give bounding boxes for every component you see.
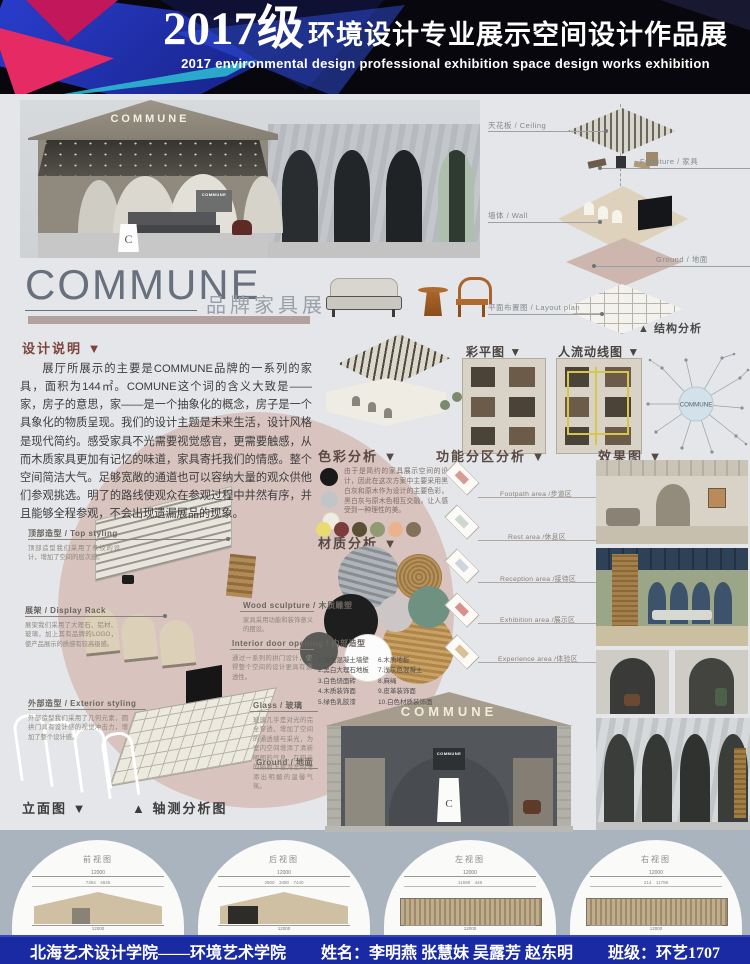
caption-interior-door: 通过一系列的拱门设计，使得整个空间的设计更具有通透性。	[232, 654, 312, 682]
title-year: 2017级	[163, 6, 304, 53]
footer-name-values: 李明燕 张慧妹 吴露芳 赵东明	[369, 939, 573, 963]
leader-line	[478, 662, 600, 663]
leader-line	[478, 540, 600, 541]
function-zones-heading: 功能分区分析 ▼	[436, 446, 546, 465]
elevation-dim: 12000	[590, 870, 722, 877]
render-thumbnail-4	[596, 718, 750, 830]
elevation-title: 前视图	[12, 854, 184, 865]
structure-exploded-diagram: 天花板 / Ceiling Furniture / 家具 墙体 / Wall G…	[488, 98, 750, 338]
material-item: 6.木质地板	[378, 656, 444, 666]
elevation-subdims: 11598 446	[404, 880, 536, 887]
leader-line	[478, 497, 600, 498]
axon-building-arch	[352, 396, 360, 406]
leader-dot	[600, 312, 604, 316]
structure-arch	[598, 206, 608, 219]
front-render-chair	[523, 800, 541, 814]
hero-desk-front	[124, 225, 220, 233]
zone-icon-footpath	[444, 460, 479, 495]
brand-underline	[25, 310, 197, 311]
leader-line	[594, 266, 750, 267]
elevation-rear: 后视图 12000 2900 3490 7440 12000	[198, 840, 370, 935]
caption-display-rack: 展架我们采用了大理石、铝材、玻璃，加上其有品牌的LOGO，使产品展示的质感有较高…	[25, 621, 117, 649]
footer-class: 班级： 环艺1707	[608, 939, 720, 963]
axon-analysis-label: ▲ 轴测分析图	[132, 798, 227, 817]
axon-building-tree	[452, 392, 462, 402]
design-note-body: 展厅所展示的主要是COMMUNE品牌的一系列的家具，面积为144㎡。COMUNE…	[20, 360, 312, 523]
elevation-drawing	[400, 898, 542, 926]
hero-rendering: COMMUNE C COMMUNE	[20, 100, 480, 258]
caption-exterior-styling: 外部造型我们采用了几何元素，圆拱门具有设计感的视觉冲击力，增加了整个设计感。	[28, 714, 128, 742]
sofa-icon	[326, 296, 402, 310]
leader-dot	[598, 220, 602, 224]
leader-line	[250, 711, 318, 712]
hero-neon-sign: COMMUNE	[75, 113, 225, 125]
caption-glass: 玻璃几乎是对光的完全穿透，增加了空间的通透感与采光，为室内空间增添了清新明朗的气…	[253, 716, 313, 792]
elevation-dim-bottom: 12000	[32, 925, 164, 931]
material-item: 8.麻绳	[378, 677, 444, 687]
front-render-pillar	[327, 726, 341, 826]
label-display-rack: 展架 / Display Rack	[25, 605, 106, 616]
sofa-leg	[332, 309, 335, 317]
hero-ceiling	[38, 138, 268, 176]
title-chinese: 环境设计专业展示空间设计作品展	[308, 19, 728, 53]
elevation-dim-bottom: 12000	[590, 925, 722, 931]
structure-arch	[584, 202, 594, 215]
leader-line	[488, 131, 606, 132]
render-thumbnail-1	[596, 460, 748, 544]
caption-wood-sculpture: 家具采用功能和装饰意义的摆设。	[243, 616, 313, 635]
leader-line	[488, 222, 600, 223]
front-view-rendering: COMMUNE C COMMUNE	[325, 692, 573, 832]
brand-subtitle: 品牌家具展	[206, 289, 326, 318]
material-item: 7.浅灰色混凝土	[378, 666, 444, 676]
hero-inner-sign: COMMUNE	[196, 190, 232, 212]
footer-school: 北海艺术设计学院——环境艺术学院	[30, 939, 286, 963]
elevation-block	[228, 906, 258, 924]
label-exterior-styling: 外部造型 / Exterior styling	[28, 698, 136, 709]
label-wood-sculpture: Wood sculpture / 木质雕塑	[243, 600, 352, 611]
flow-path-line	[595, 367, 597, 445]
leader-dot	[163, 614, 167, 618]
leader-dot	[598, 166, 602, 170]
hero-arch-4	[438, 150, 474, 242]
material-item: 5.绿色乳胶漆	[318, 698, 374, 708]
hero-arch-1	[282, 150, 318, 242]
elevation-subdims: 2900 3490 7440	[218, 880, 350, 887]
color-swatch-gray	[321, 491, 338, 508]
side-table-icon	[424, 292, 442, 316]
elevation-subdims: 214 11786	[590, 880, 722, 887]
axon-building-arch	[368, 402, 376, 412]
footer-class-value: 环艺1707	[656, 939, 720, 963]
footer-class-label: 班级：	[608, 939, 656, 963]
material-list-right: 6.木质地板 7.浅灰色混凝土 8.麻绳 9.皮革装饰面 10.白色材质装饰面	[378, 656, 444, 708]
elevation-dim-bottom: 12000	[404, 925, 536, 931]
structure-furniture-piece	[616, 156, 626, 168]
elevation-dim-bottom: 12000	[218, 925, 350, 931]
label-interior-door: Interior door opening / 内部造型	[232, 638, 366, 649]
material-item: 4.木质装饰面	[318, 687, 374, 697]
armchair-leg	[482, 305, 485, 317]
elevation-drawing	[34, 892, 162, 924]
axon-building-roof	[338, 334, 450, 388]
hero-gallery-floor	[268, 242, 480, 258]
hero-red-chair	[232, 220, 252, 235]
render-thumbnail-3a	[596, 650, 669, 714]
elevation-door	[72, 908, 90, 924]
axon-building-arch	[384, 408, 392, 418]
structure-dark-block	[638, 196, 672, 231]
axon-spotlight	[122, 575, 134, 584]
hero-arch-3	[386, 150, 422, 242]
label-glass: Glass / 玻璃	[253, 700, 302, 711]
elevation-dim: 12000	[218, 870, 350, 877]
header-banner: 2017级 环境设计专业展示空间设计作品展 2017 environmental…	[0, 0, 750, 94]
poster: 2017级 环境设计专业展示空间设计作品展 2017 environmental…	[0, 0, 750, 964]
hero-reception-desk	[128, 212, 216, 225]
title-english: 2017 environmental design professional e…	[158, 56, 733, 71]
hero-arch-gallery	[268, 124, 480, 258]
label-ground: Ground / 地面	[656, 254, 708, 265]
mindmap-center-label: COMMUNE	[680, 402, 713, 409]
mindmap-diagram: COMMUNE	[642, 348, 750, 460]
front-render-side-room	[513, 758, 553, 826]
front-render-logo-pedestal: C	[437, 778, 461, 822]
elevation-dim: 12000	[32, 870, 164, 877]
poster-title: 2017级 环境设计专业展示空间设计作品展 2017 environmental…	[158, 6, 733, 71]
leader-line	[478, 623, 600, 624]
front-render-sign: COMMUNE	[433, 748, 465, 770]
material-item: 2.黑白大理石地板	[318, 666, 374, 676]
render-thumbnail-3b	[675, 650, 748, 714]
elevation-strip: 前视图 12000 7354 4645 12000 后视图 12000 2900…	[0, 830, 750, 935]
leader-line	[600, 168, 750, 169]
hero-logo-pedestal: C	[118, 224, 139, 252]
structure-arch	[612, 210, 622, 223]
leader-line	[240, 611, 314, 612]
armchair-leg	[458, 305, 461, 317]
color-analysis-heading: 色彩分析 ▼	[318, 446, 398, 465]
front-render-pillar	[557, 726, 571, 826]
color-plan-thumbnail	[462, 358, 546, 454]
flow-path-line	[567, 371, 629, 435]
design-note-heading: 设计说明 ▼	[22, 338, 102, 357]
front-render-side-room	[345, 758, 385, 826]
elevation-title: 后视图	[198, 854, 370, 865]
color-swatch-black	[320, 468, 338, 486]
material-list-left: 1.浅色混凝土墙壁 2.黑白大理石地板 3.白色烧面砖 4.木质装饰面 5.绿色…	[318, 656, 374, 708]
color-analysis-note: 由于是简约的家具展示空间的设计，因此在这次方案中主要采用黑白灰和原木作为设计的主…	[344, 467, 448, 516]
structure-analysis-caption: ▲ 结构分析	[638, 320, 702, 336]
leader-line	[478, 582, 600, 583]
zone-icon-rest	[444, 504, 479, 539]
leader-line	[28, 709, 146, 710]
brand-bar	[28, 316, 310, 324]
flow-plan-thumbnail	[556, 358, 642, 454]
elevation-drawing	[586, 898, 728, 926]
label-ground: Ground / 地面	[256, 757, 313, 768]
caption-top-styling: 顶部造型我们采用了条纹的设计，增加了空间的层次感。	[28, 544, 120, 563]
material-item: 3.白色烧面砖	[318, 677, 374, 687]
material-item: 1.浅色混凝土墙壁	[318, 656, 374, 666]
elevation-subdims: 7354 4645	[32, 880, 164, 887]
elevation-dim: 12000	[404, 870, 536, 877]
elevation-right: 右视图 12000 214 11786 12000	[570, 840, 742, 935]
leader-dot	[226, 537, 230, 541]
leader-line	[25, 616, 165, 617]
leader-line	[230, 649, 314, 650]
accent-swatch-6	[406, 522, 421, 537]
label-wall: 墙体 / Wall	[488, 210, 528, 221]
leader-line	[254, 768, 318, 769]
elevation-left: 左视图 12000 11598 446 12000	[384, 840, 556, 935]
label-top-styling: 顶部造型 / Top styling	[28, 528, 118, 539]
footer-names: 姓名： 李明燕 张慧妹 吴露芳 赵东明	[321, 939, 573, 963]
hero-arch-2	[334, 150, 370, 242]
sofa-leg	[392, 309, 395, 317]
leader-dot	[604, 129, 608, 133]
render-thumbnail-2	[596, 548, 748, 646]
footer-bar: 北海艺术设计学院——环境艺术学院 姓名： 李明燕 张慧妹 吴露芳 赵东明 班级：…	[0, 935, 750, 964]
material-green	[408, 586, 450, 628]
axon-building-body	[326, 378, 446, 426]
leader-dot	[592, 264, 596, 268]
elevation-front: 前视图 12000 7354 4645 12000	[12, 840, 184, 935]
leader-line	[28, 539, 228, 540]
front-render-ground	[325, 826, 573, 832]
material-item: 10.白色材质装饰面	[378, 698, 444, 708]
leader-line	[488, 314, 602, 315]
label-ceiling: 天花板 / Ceiling	[488, 120, 546, 131]
elevation-title: 右视图	[570, 854, 742, 865]
elevation-title: 左视图	[384, 854, 556, 865]
axon-wood-sculpture	[226, 554, 256, 598]
label-furniture: Furniture / 家具	[640, 156, 698, 167]
hero-floor	[38, 233, 268, 258]
elevation-label: 立面图 ▼	[22, 798, 87, 817]
axon-building-tree	[440, 400, 450, 410]
material-item: 9.皮革装饰面	[378, 687, 444, 697]
label-layout-plan: 平面布置图 / Layout plan	[488, 302, 580, 313]
footer-name-label: 姓名：	[321, 939, 369, 963]
